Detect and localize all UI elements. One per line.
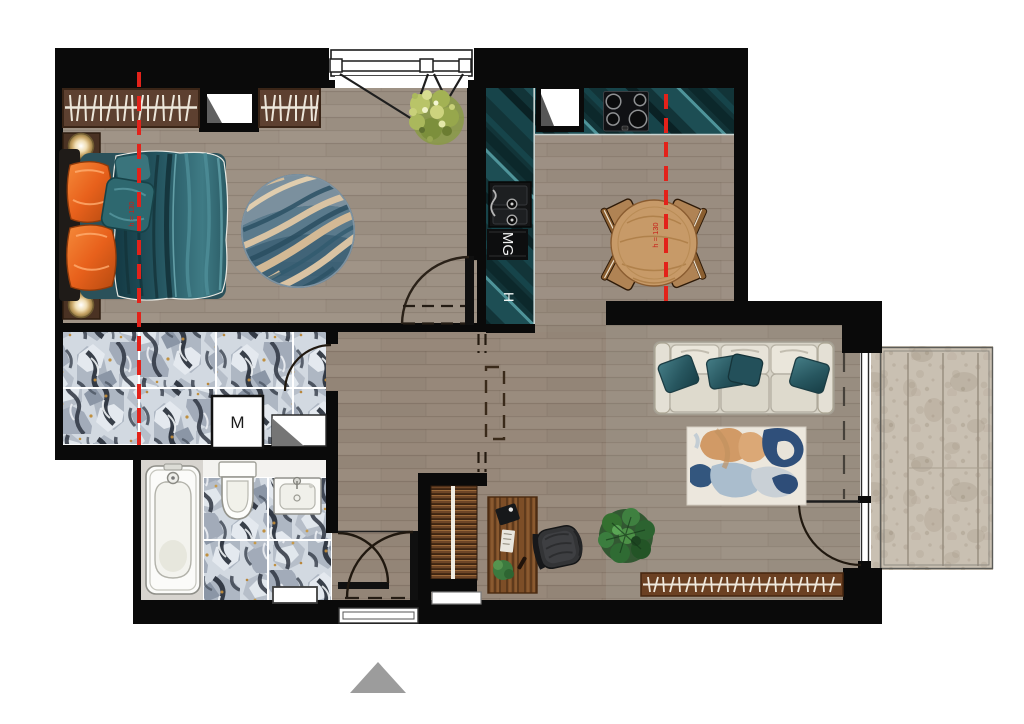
svg-text:MG: MG — [499, 232, 516, 256]
svg-text:h = 130: h = 130 — [651, 222, 660, 247]
svg-text:M: M — [230, 413, 244, 432]
svg-text:h = 130: h = 130 — [127, 201, 136, 226]
svg-text:H: H — [501, 292, 517, 302]
